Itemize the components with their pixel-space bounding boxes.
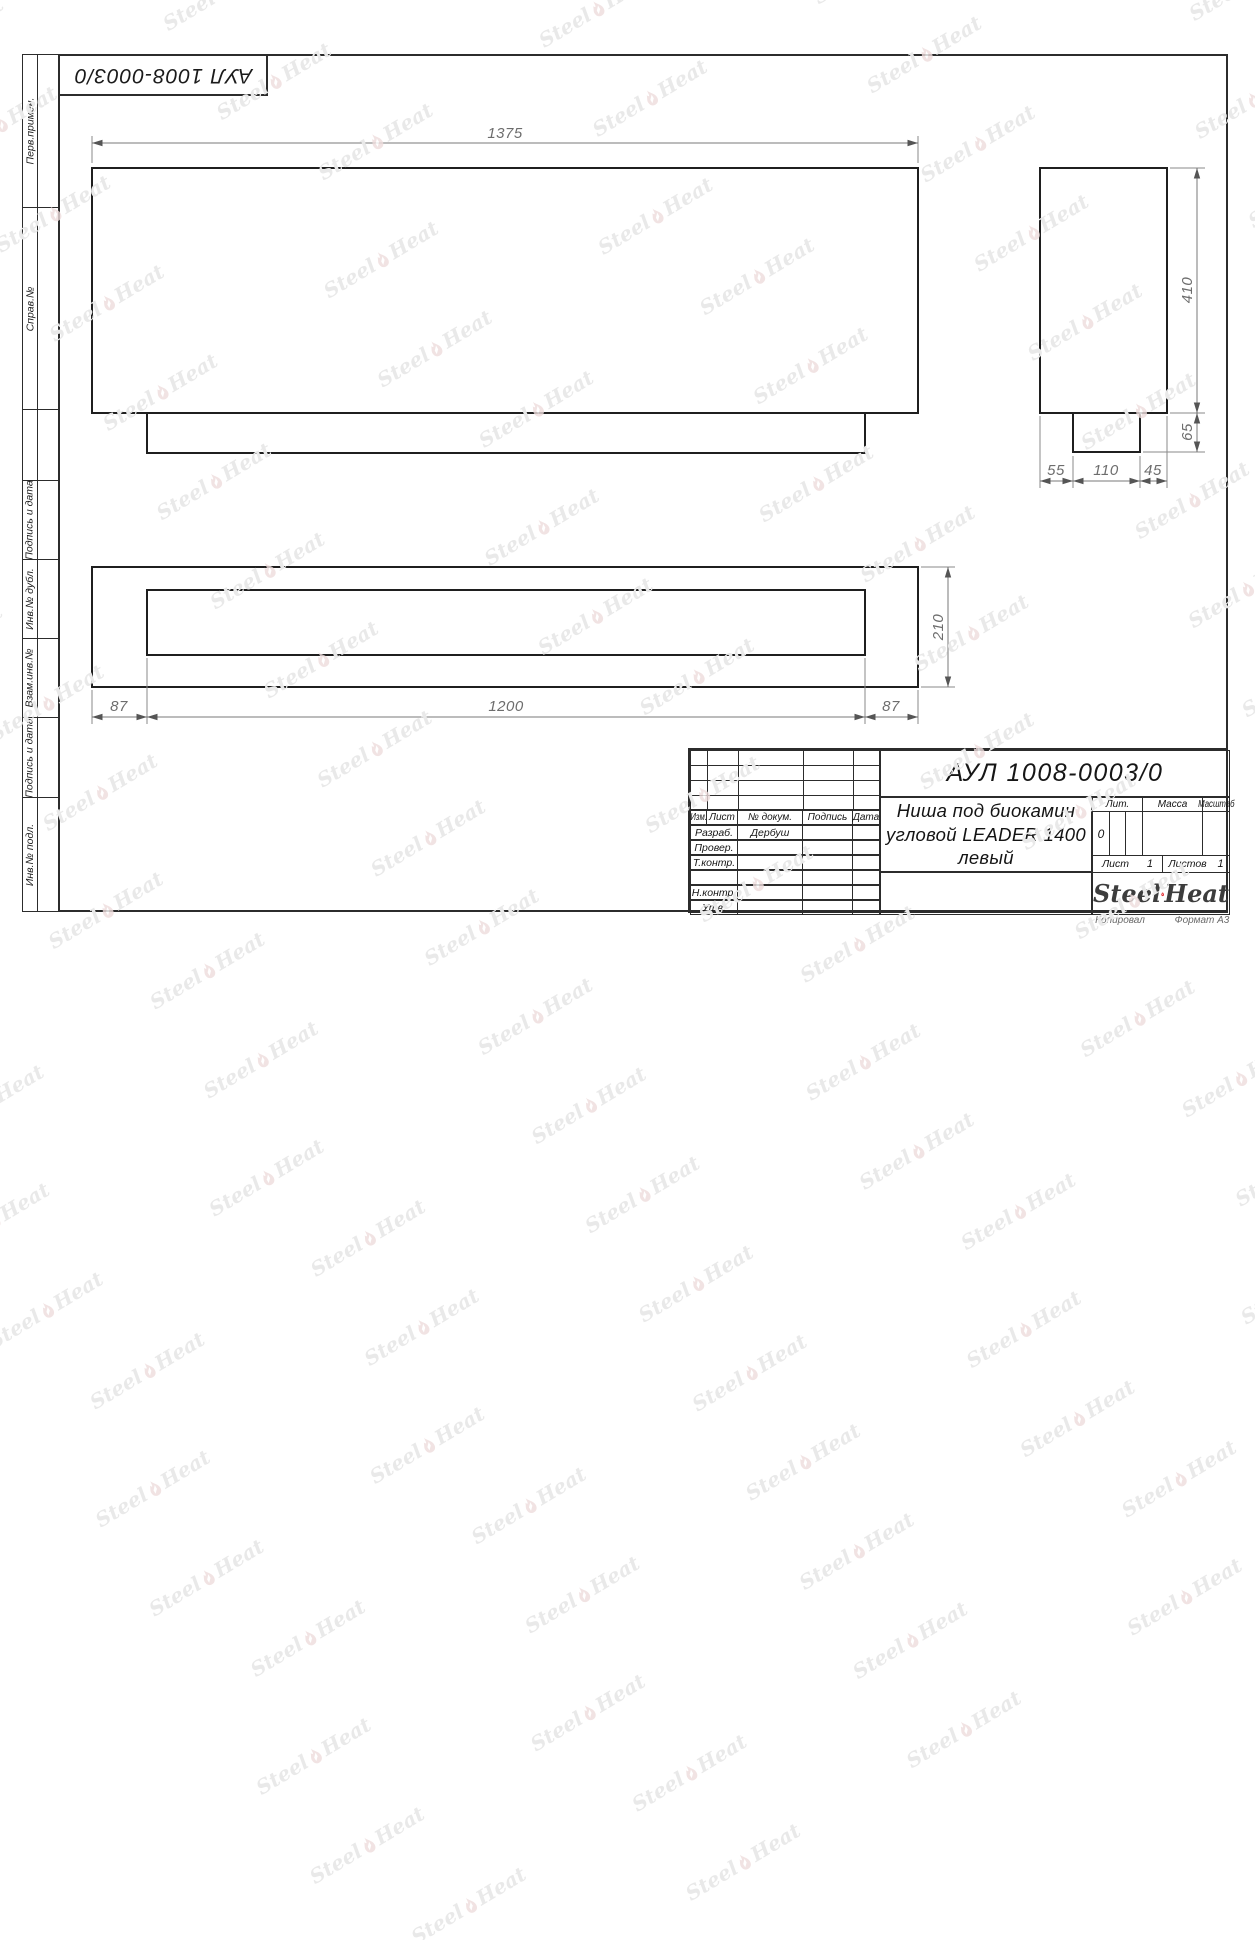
watermark-flame-icon (1069, 1407, 1089, 1428)
row-date-utv (852, 900, 880, 915)
watermark: Steel Heat (688, 1329, 811, 1416)
watermark-text-heat: Heat (317, 1712, 376, 1760)
watermark: Steel Heat (1177, 1035, 1255, 1122)
scale-header: Масштаб (1202, 797, 1230, 812)
watermark-flame-icon (359, 1227, 379, 1248)
row-sig-razrab (802, 825, 853, 840)
watermark-text-heat: Heat (1242, 1035, 1255, 1083)
watermark-text-steel: Steel (205, 1171, 266, 1221)
watermark-text-steel: Steel (681, 1856, 742, 1906)
part-title-line3: левый (958, 846, 1014, 870)
watermark-text-steel: Steel (473, 1010, 534, 1060)
notes-cell (880, 872, 1092, 915)
watermark-text-heat: Heat (592, 1062, 651, 1110)
watermark-text-heat: Heat (209, 1534, 268, 1582)
row-label-tkontr: Т.контр. (690, 855, 738, 870)
watermark: Steel Heat (1231, 1124, 1255, 1211)
row-value-utv (737, 900, 803, 915)
watermark: Steel Heat (801, 1018, 924, 1105)
row-date-prover (852, 840, 880, 855)
row-sig-empty (802, 870, 853, 885)
lit-value-cell: 0 (1092, 811, 1110, 856)
watermark: Steel Heat (205, 1134, 328, 1221)
watermark-text-steel: Steel (520, 1588, 581, 1638)
watermark: Steel Heat (360, 1283, 483, 1370)
watermark: Steel Heat (407, 1862, 530, 1940)
watermark: Steel Heat (199, 1016, 322, 1103)
margin-cell-podpis-data-2: Подпись и дата (22, 717, 59, 798)
watermark-text-heat: Heat (866, 1018, 925, 1066)
top-stamp-text: АУЛ 1008-0003/0 (74, 63, 252, 87)
margin-cell-inv-podl: Инв.№ подл. (22, 797, 59, 912)
watermark: Steel Heat (145, 1534, 268, 1621)
watermark-text-steel: Steel (407, 1899, 468, 1940)
revision-table (690, 750, 880, 810)
watermark-text-heat: Heat (913, 1596, 972, 1644)
watermark-flame-icon (460, 1894, 480, 1915)
mass-value-cell (1142, 811, 1203, 856)
watermark-flame-icon (198, 1566, 218, 1587)
row-date-nkontr (852, 885, 880, 900)
watermark-flame-icon (734, 1851, 754, 1872)
row-date-tkontr (852, 855, 880, 870)
logo-text-heat: Heat (1164, 879, 1229, 908)
col-header-izm: Изм. (690, 810, 707, 825)
watermark: Steel Heat (467, 1462, 590, 1549)
row-sig-prover (802, 840, 853, 855)
watermark-text-heat: Heat (1081, 1375, 1140, 1423)
watermark-flame-icon (252, 1048, 272, 1069)
watermark-text-steel: Steel (628, 1767, 689, 1817)
watermark-flame-icon (138, 1359, 158, 1380)
logo-text-steel: Steel (1093, 879, 1161, 908)
row-label-nkontr: Н.контр. (690, 885, 738, 900)
watermark: Steel Heat (741, 1418, 864, 1505)
watermark-text-steel: Steel (0, 1304, 45, 1354)
watermark-text-steel: Steel (634, 1277, 695, 1327)
watermark-text-steel: Steel (252, 1750, 313, 1800)
watermark: Steel Heat (252, 1712, 375, 1799)
watermark-text-heat: Heat (645, 1151, 704, 1199)
watermark-flame-icon (418, 1434, 438, 1455)
watermark-text-heat: Heat (538, 972, 597, 1020)
watermark: Steel Heat (634, 1240, 757, 1327)
title-block: Изм. Лист № докум. Подпись Дата Разраб. … (688, 748, 1228, 913)
row-label-razrab: Разраб. (690, 825, 738, 840)
watermark: Steel Heat (1076, 975, 1199, 1062)
watermark-text-heat: Heat (370, 1801, 429, 1849)
watermark-text-heat: Heat (270, 1134, 329, 1182)
watermark-text-heat: Heat (1182, 1435, 1241, 1483)
watermark-text-heat: Heat (311, 1594, 370, 1642)
watermark-text-heat: Heat (49, 1267, 108, 1315)
watermark: Steel Heat (246, 1594, 369, 1681)
col-header-data: Дата (852, 810, 880, 825)
watermark-flame-icon (299, 1627, 319, 1648)
watermark-text-steel: Steel (1016, 1412, 1077, 1462)
watermark-flame-icon (681, 1761, 701, 1782)
watermark: Steel Heat (473, 972, 596, 1059)
watermark-text-heat: Heat (1027, 1286, 1086, 1334)
part-title-line2: угловой LEADER 1400 (886, 823, 1086, 847)
watermark-text-heat: Heat (753, 1329, 812, 1377)
watermark: Steel Heat (1117, 1435, 1240, 1522)
watermark-text-steel: Steel (85, 1364, 146, 1414)
copied-label: Копировал (1072, 915, 1168, 926)
watermark-text-heat: Heat (371, 1194, 430, 1242)
watermark-text-heat: Heat (591, 1669, 650, 1717)
watermark-text-steel: Steel (581, 1188, 642, 1238)
watermark: Steel Heat (956, 1168, 1079, 1255)
sheets-cell: Листов1 (1162, 855, 1230, 873)
watermark-flame-icon (1230, 1067, 1250, 1088)
watermark-flame-icon (413, 1316, 433, 1337)
watermark-flame-icon (901, 1629, 921, 1650)
watermark-text-steel: Steel (801, 1056, 862, 1106)
watermark-flame-icon (794, 1450, 814, 1471)
col-header-docnum: № докум. (737, 810, 803, 825)
watermark: Steel Heat (1123, 1553, 1246, 1640)
margin-label: Подпись и дата (24, 480, 36, 559)
row-sig-nkontr (802, 885, 853, 900)
watermark-text-steel: Steel (91, 1482, 152, 1532)
watermark-text-steel: Steel (365, 1439, 426, 1489)
watermark-text-heat: Heat (806, 1418, 865, 1466)
watermark-text-steel: Steel (1177, 1072, 1238, 1122)
watermark-text-heat: Heat (532, 1462, 591, 1510)
watermark-flame-icon (520, 1494, 540, 1515)
watermark-text-heat: Heat (472, 1862, 531, 1910)
watermark-flame-icon (687, 1272, 707, 1293)
row-label-prover: Провер. (690, 840, 738, 855)
company-logo: Steel Heat (1092, 872, 1230, 915)
watermark: Steel Heat (581, 1151, 704, 1238)
watermark-text-heat: Heat (967, 1686, 1026, 1734)
watermark-text-steel: Steel (1117, 1472, 1178, 1522)
lit-cell-2 (1109, 811, 1126, 856)
watermark-text-heat: Heat (1188, 1553, 1247, 1601)
watermark: Steel Heat (0, 1059, 48, 1146)
watermark: Steel Heat (365, 1401, 488, 1488)
watermark-text-steel: Steel (741, 1456, 802, 1506)
margin-cell-perv-primen: Перв.примен. (22, 54, 59, 208)
margin-label: Взам.инв.№ (24, 648, 36, 707)
margin-cell-sprav-no: Справ.№ (22, 207, 59, 410)
watermark-text-heat: Heat (0, 1177, 54, 1225)
watermark-flame-icon (526, 1005, 546, 1026)
row-sig-utv (802, 900, 853, 915)
watermark-flame-icon (144, 1477, 164, 1498)
watermark: Steel Heat (848, 1596, 971, 1683)
watermark: Steel Heat (855, 1107, 978, 1194)
margin-cell-blank (22, 409, 59, 481)
watermark: Steel Heat (0, 1177, 54, 1264)
watermark-text-heat: Heat (746, 1818, 805, 1866)
scale-value-cell (1202, 811, 1230, 856)
watermark-text-heat: Heat (1021, 1168, 1080, 1216)
watermark-text-heat: Heat (150, 1327, 209, 1375)
watermark-text-heat: Heat (425, 1283, 484, 1331)
watermark-text-heat: Heat (752, 1936, 811, 1940)
watermark-text-steel: Steel (146, 964, 207, 1014)
watermark: Steel Heat (0, 1267, 107, 1354)
watermark-text-heat: Heat (693, 1729, 752, 1777)
format-label: Формат А3 (1172, 915, 1232, 926)
watermark-flame-icon (854, 1050, 874, 1071)
watermark-flame-icon (37, 1299, 57, 1320)
top-stamp-box: АУЛ 1008-0003/0 (58, 54, 268, 96)
watermark-text-steel: Steel (848, 1634, 909, 1684)
doc-number-cell: АУЛ 1008-0003/0 (880, 750, 1230, 797)
watermark-text-steel: Steel (1236, 1280, 1255, 1330)
watermark-flame-icon (358, 1834, 378, 1855)
watermark: Steel Heat (962, 1286, 1085, 1373)
col-header-podpis: Подпись (802, 810, 853, 825)
watermark: Steel Heat (520, 1551, 643, 1638)
drawing-sheet: 1375 410 65 55 110 45 (0, 0, 1255, 970)
row-value-nkontr (737, 885, 803, 900)
watermark-flame-icon (580, 1094, 600, 1115)
watermark: Steel Heat (902, 1686, 1025, 1773)
row-value-razrab: Дербуш (737, 825, 803, 840)
watermark-flame-icon (579, 1701, 599, 1722)
watermark: Steel Heat (91, 1445, 214, 1532)
watermark-text-heat: Heat (1141, 975, 1200, 1023)
part-title-line1: Ниша под биокамин (897, 799, 1076, 823)
margin-cell-vzam-inv: Взам.инв.№ (22, 638, 59, 718)
watermark: Steel Heat (526, 1669, 649, 1756)
margin-label: Подпись и дата (24, 718, 36, 797)
watermark-text-steel: Steel (795, 1545, 856, 1595)
row-date-razrab (852, 825, 880, 840)
watermark-flame-icon (1176, 1585, 1196, 1606)
watermark: Steel Heat (681, 1818, 804, 1905)
row-label-utv: Утв. (690, 900, 738, 915)
watermark-flame-icon (741, 1361, 761, 1382)
row-date-empty (852, 870, 880, 885)
watermark-flame-icon (1015, 1318, 1035, 1339)
watermark: Steel Heat (628, 1729, 751, 1816)
watermark-flame-icon (305, 1745, 325, 1766)
row-value-prover (737, 840, 803, 855)
watermark-flame-icon (0, 1210, 3, 1231)
watermark-text-steel: Steel (1231, 1162, 1255, 1212)
margin-label: Инв.№ дубл. (24, 568, 36, 630)
watermark-flame-icon (1170, 1467, 1190, 1488)
watermark-text-steel: Steel (956, 1205, 1017, 1255)
watermark-text-steel: Steel (855, 1145, 916, 1195)
sheet-cell: Лист1 (1092, 855, 1163, 873)
watermark-text-heat: Heat (430, 1401, 489, 1449)
watermark-text-steel: Steel (527, 1099, 588, 1149)
part-title-cell: Ниша под биокамин угловой LEADER 1400 ле… (880, 797, 1092, 872)
col-header-list: Лист (706, 810, 738, 825)
watermark-text-steel: Steel (467, 1499, 528, 1549)
watermark-text-heat: Heat (920, 1107, 979, 1155)
watermark: Steel Heat (305, 1801, 428, 1888)
row-value-empty (737, 870, 803, 885)
watermark-flame-icon (848, 1540, 868, 1561)
watermark-text-heat: Heat (860, 1507, 919, 1555)
watermark: Steel Heat (306, 1194, 429, 1281)
watermark-flame-icon (634, 1183, 654, 1204)
watermark-text-heat: Heat (264, 1016, 323, 1064)
watermark-text-steel: Steel (688, 1367, 749, 1417)
watermark: Steel Heat (687, 1936, 810, 1940)
watermark-text-steel: Steel (305, 1839, 366, 1889)
watermark-text-heat: Heat (0, 1059, 48, 1107)
watermark: Steel Heat (85, 1327, 208, 1414)
mass-header: Масса (1142, 797, 1203, 812)
watermark-text-steel: Steel (246, 1632, 307, 1682)
row-value-tkontr (737, 855, 803, 870)
watermark-flame-icon (1129, 1007, 1149, 1028)
watermark-text-heat: Heat (585, 1551, 644, 1599)
watermark-text-steel: Steel (962, 1323, 1023, 1373)
watermark-text-steel: Steel (306, 1232, 367, 1282)
margin-label: Перв.примен. (24, 98, 36, 165)
row-sig-tkontr (802, 855, 853, 870)
watermark-flame-icon (1009, 1200, 1029, 1221)
watermark-flame-icon (258, 1166, 278, 1187)
lit-cell-3 (1125, 811, 1143, 856)
watermark-text-steel: Steel (360, 1321, 421, 1371)
margin-cell-podpis-data-1: Подпись и дата (22, 480, 59, 560)
margin-label: Инв.№ подл. (24, 823, 36, 885)
watermark: Steel Heat (1016, 1375, 1139, 1462)
watermark: Steel Heat (795, 1507, 918, 1594)
watermark-text-steel: Steel (902, 1723, 963, 1773)
row-label-empty (690, 870, 738, 885)
margin-cell-inv-dubl: Инв.№ дубл. (22, 559, 59, 639)
watermark-text-steel: Steel (1123, 1590, 1184, 1640)
watermark-flame-icon (955, 1718, 975, 1739)
watermark-text-heat: Heat (156, 1445, 215, 1493)
watermark-flame-icon (908, 1139, 928, 1160)
watermark-text-steel: Steel (1076, 1012, 1137, 1062)
watermark-flame-icon (573, 1583, 593, 1604)
lit-header: Лит. (1092, 797, 1143, 812)
margin-label: Справ.№ (24, 286, 36, 331)
watermark: Steel Heat (527, 1062, 650, 1149)
watermark: Steel Heat (1236, 1242, 1255, 1329)
watermark-text-heat: Heat (699, 1240, 758, 1288)
watermark-text-steel: Steel (526, 1706, 587, 1756)
watermark-text-steel: Steel (199, 1053, 260, 1103)
watermark-text-steel: Steel (145, 1572, 206, 1622)
